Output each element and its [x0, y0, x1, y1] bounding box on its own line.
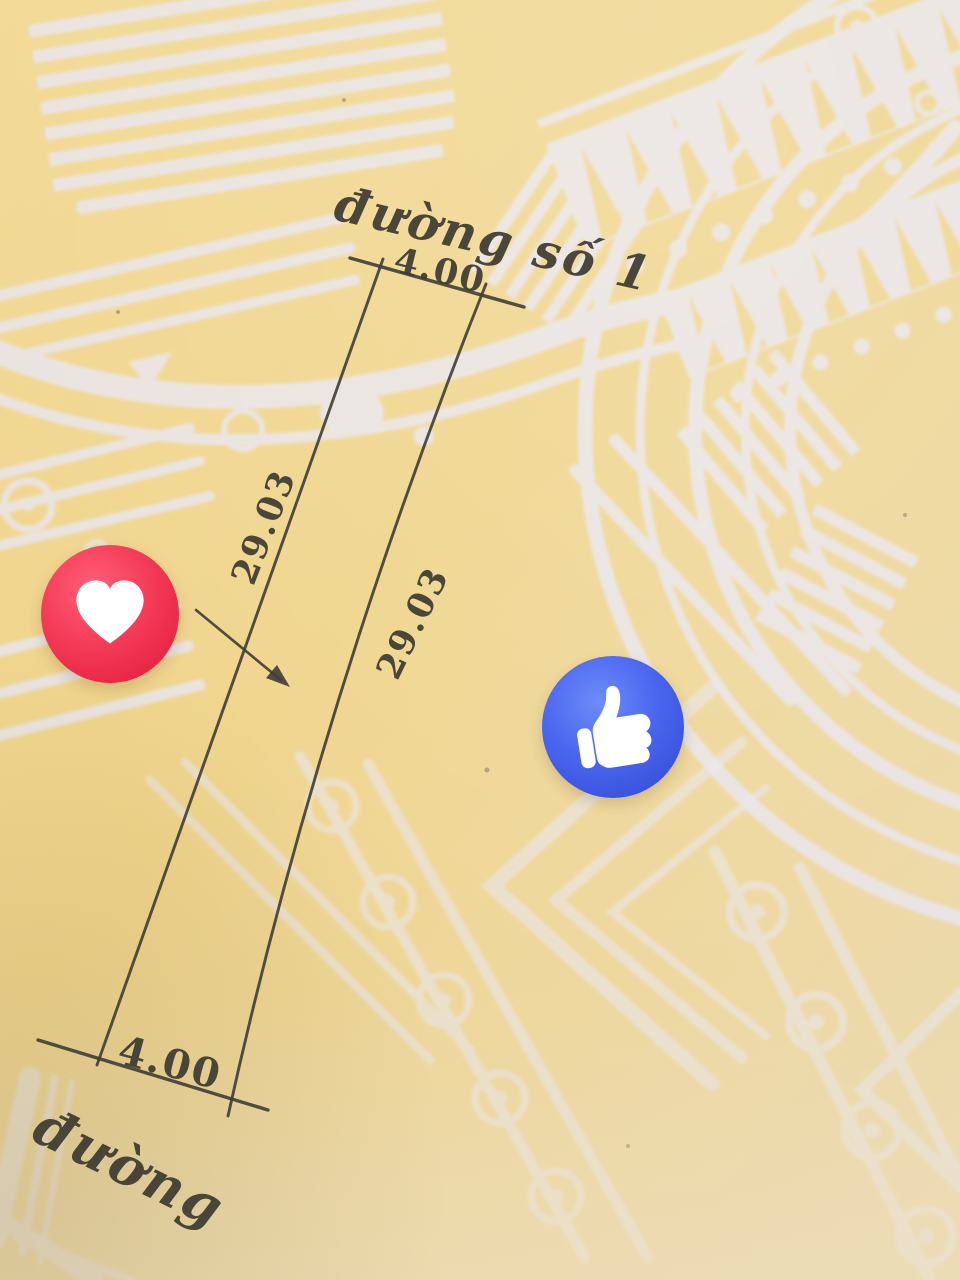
- heart-icon: [66, 573, 154, 655]
- love-reaction-sticker: [41, 545, 179, 683]
- direction-arrow-head: [266, 665, 290, 687]
- right-boundary-line: [228, 284, 486, 1116]
- photo-of-land-plot-sketch: đường số 1 4.00 29.03 29.03 4.00 đường: [0, 0, 960, 1280]
- like-reaction-sticker: [542, 656, 684, 798]
- thumbs-up-icon: [558, 672, 668, 782]
